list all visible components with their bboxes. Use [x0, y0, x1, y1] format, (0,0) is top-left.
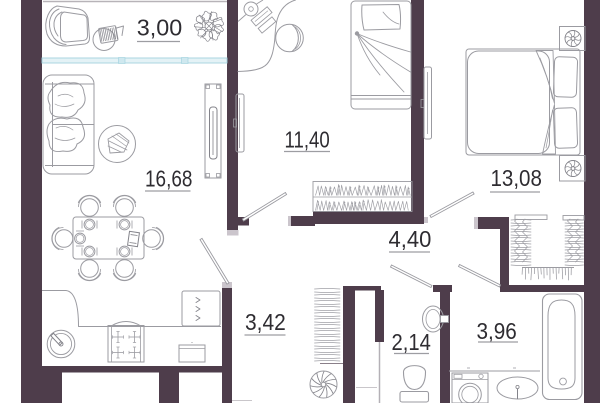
svg-text:2,14: 2,14 [392, 329, 431, 355]
svg-text:3,00: 3,00 [137, 15, 182, 41]
svg-text:16,68: 16,68 [145, 166, 192, 192]
svg-text:13,08: 13,08 [491, 165, 542, 191]
svg-text:4,40: 4,40 [389, 226, 432, 252]
svg-text:11,40: 11,40 [285, 127, 330, 153]
svg-text:3,42: 3,42 [245, 309, 286, 335]
svg-text:3,96: 3,96 [477, 318, 517, 344]
